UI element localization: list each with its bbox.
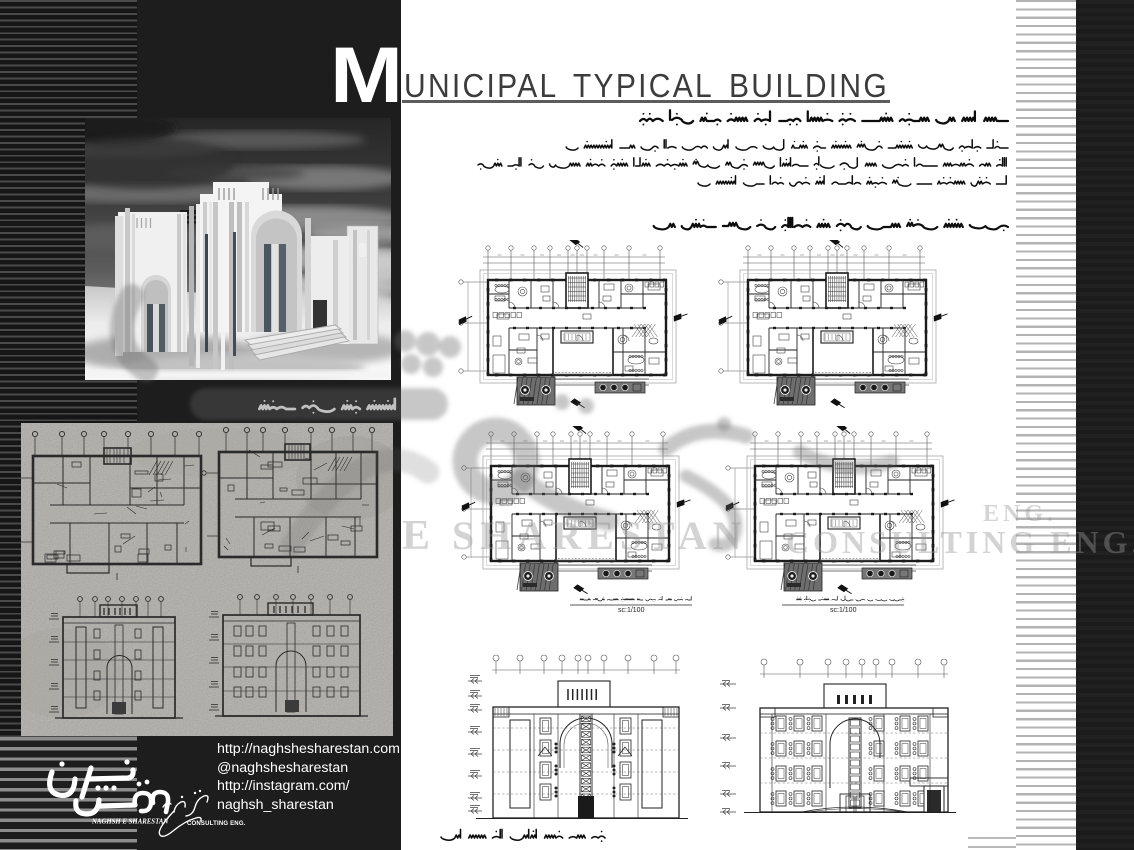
svg-text:CONSULTING ENG.: CONSULTING ENG. <box>187 821 246 827</box>
svg-text:NAGHSH E SHARESTAN: NAGHSH E SHARESTAN <box>91 819 169 826</box>
svg-text:E: E <box>402 513 442 559</box>
svg-text:sc:1/100: sc:1/100 <box>618 607 645 614</box>
svg-text:sc:1/100: sc:1/100 <box>830 607 857 614</box>
